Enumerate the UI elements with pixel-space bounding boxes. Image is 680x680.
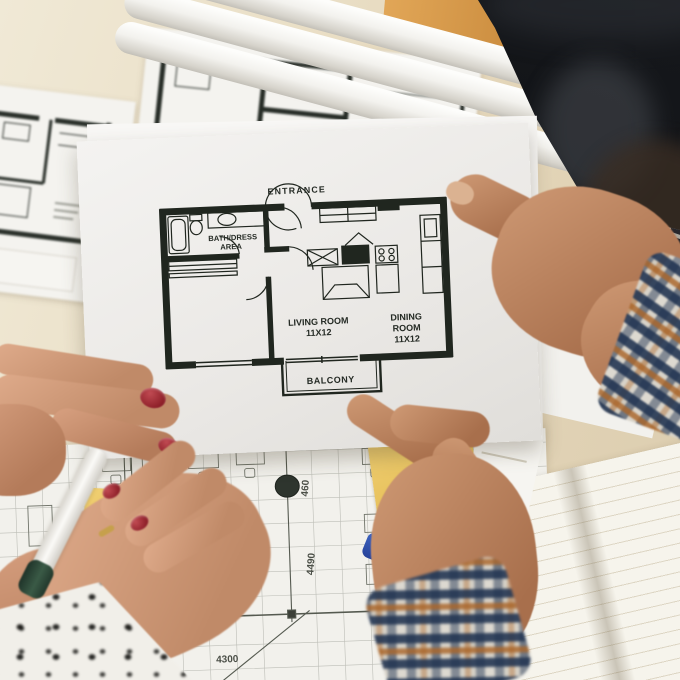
screen-reflection-glare (480, 0, 680, 40)
living-label: LIVING ROOM (288, 315, 349, 328)
man-right-hand (440, 168, 680, 403)
plan-bath-fixtures (167, 211, 267, 278)
dining-label-2: ROOM (392, 322, 420, 333)
woman-right-hand (0, 430, 340, 680)
plan-couch (322, 266, 369, 300)
plan-kitchen (305, 197, 443, 298)
photo-scene: 4300 4490 460 (0, 0, 680, 680)
notebook-crease (553, 465, 642, 680)
dining-size: 11X12 (394, 333, 420, 344)
man-left-hand (330, 402, 560, 680)
bath-label-2: AREA (220, 242, 242, 252)
sheet-corner (0, 244, 76, 291)
plan-interior-walls (162, 205, 294, 368)
balcony-label: BALCONY (307, 374, 355, 386)
living-size: 11X12 (306, 327, 332, 338)
entrance-label: ENTRANCE (267, 184, 326, 196)
dining-label-1: DINING (390, 311, 422, 322)
